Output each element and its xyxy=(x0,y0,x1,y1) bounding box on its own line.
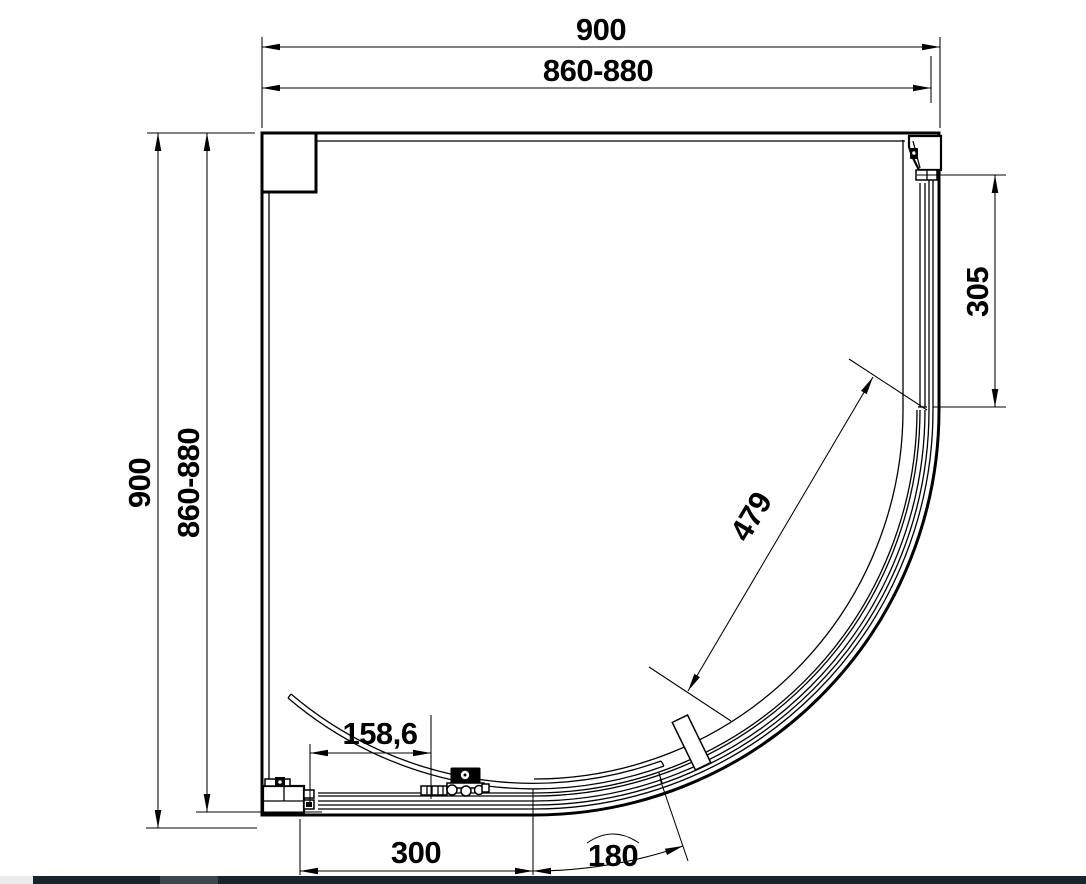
wall-bracket-lug-top xyxy=(304,790,314,798)
roller-housing-hub-dot xyxy=(464,774,467,777)
top-roller-bracket xyxy=(909,136,941,180)
technical-drawing: 900 860-880 900 860-880 305 479 158,6 xyxy=(0,0,1086,884)
fixed-side-panel xyxy=(918,183,927,407)
ext-line xyxy=(849,359,927,410)
roller-wheel-2 xyxy=(461,786,471,796)
dim-front-panel-label: 300 xyxy=(391,835,441,870)
dimension-front-panel: 300 xyxy=(300,789,533,875)
taskbar-strip[interactable] xyxy=(0,876,1086,884)
dim-handle-offset-label: 158,6 xyxy=(342,716,417,751)
rail-arc-1 xyxy=(318,175,933,809)
dimension-width-adjustment: 860-880 xyxy=(262,53,931,103)
dim-arc-length-label: 180 xyxy=(588,838,638,873)
dimension-side-panel: 305 xyxy=(917,175,1006,407)
dim-height-adjustment-label: 860-880 xyxy=(171,428,206,538)
wall-bracket-lug-fill xyxy=(306,802,312,807)
dim-line xyxy=(688,377,873,691)
door-handle xyxy=(672,715,711,770)
enclosure-outline xyxy=(262,133,939,815)
dim-height-overall-label: 900 xyxy=(122,458,157,508)
rail-arc-2 xyxy=(318,175,929,805)
corner-block xyxy=(262,133,316,192)
door-panel-closed xyxy=(534,410,925,801)
dimension-door-diagonal: 479 xyxy=(649,359,927,721)
taskbar-left-gap xyxy=(0,876,33,884)
roller-end-block xyxy=(482,784,489,792)
dim-width-adjustment-label: 860-880 xyxy=(543,53,653,88)
door-closed-glass-inner xyxy=(534,410,920,796)
inner-track-edge xyxy=(534,140,903,779)
track-rails xyxy=(318,140,933,809)
dimension-height-adjustment: 860-880 xyxy=(171,133,322,812)
door-open-cap-bottom xyxy=(661,761,664,766)
wall-profile-bracket xyxy=(263,777,314,813)
dim-width-overall-label: 900 xyxy=(576,12,626,47)
dim-door-diagonal-label: 479 xyxy=(723,486,779,547)
wall-bracket-screw-dot xyxy=(278,780,282,784)
dim-side-panel-label: 305 xyxy=(960,267,995,317)
roller-wheel-1 xyxy=(447,785,457,795)
door-open-cap-top xyxy=(288,694,291,698)
taskbar-app-segment[interactable] xyxy=(160,876,218,884)
ext-line xyxy=(649,667,731,721)
